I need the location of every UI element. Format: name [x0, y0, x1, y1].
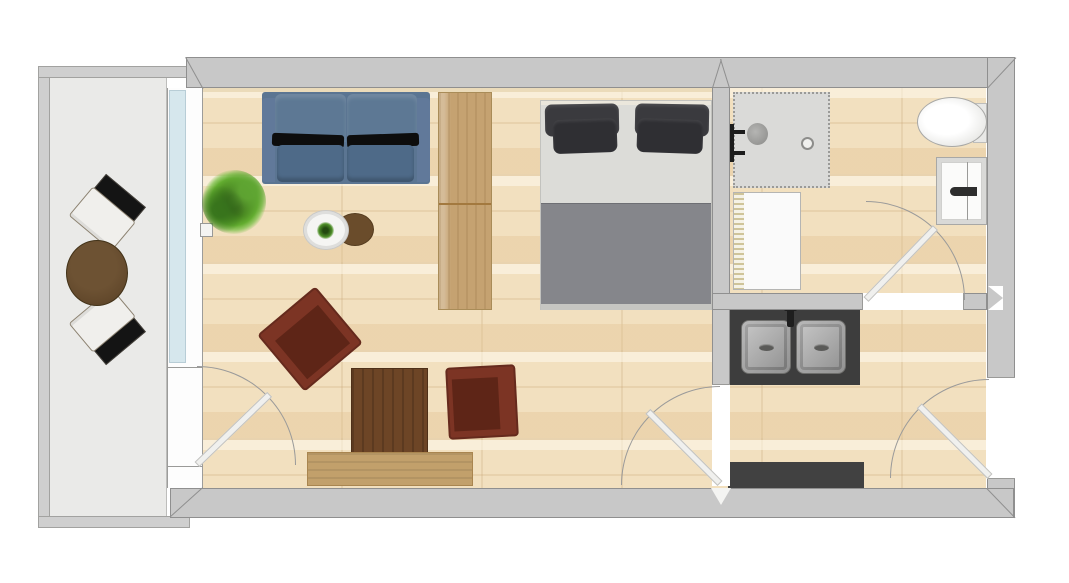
wall-top — [186, 57, 1014, 88]
potted-plant — [202, 170, 266, 234]
armchair-seat — [452, 377, 501, 431]
sink-basin-right — [796, 320, 846, 374]
door-jamb — [987, 377, 1015, 378]
desk — [351, 368, 428, 453]
sink-drain — [814, 344, 829, 351]
shower — [733, 92, 830, 188]
sofa-seat-cushion — [347, 145, 414, 182]
bed-footboard — [541, 304, 711, 310]
wall-bottom — [170, 488, 1014, 518]
entrance-door-opening — [987, 378, 1015, 478]
wall-interior-vertical — [712, 88, 730, 385]
floor-plan — [0, 0, 1069, 583]
armchair-right — [445, 364, 519, 440]
bed-pillow — [552, 118, 617, 154]
kitchen-floor-mat — [728, 462, 864, 489]
shower-head — [747, 123, 768, 145]
shower-fixture-arm — [734, 151, 745, 155]
wall-joint-triangle — [711, 488, 731, 505]
door-jamb — [712, 384, 730, 385]
table-plant — [317, 222, 334, 239]
double-bed — [540, 100, 712, 310]
balcony-round-table — [66, 240, 128, 306]
washbasin — [936, 157, 987, 225]
balcony-window-glass — [169, 90, 186, 363]
washbasin-faucet — [950, 187, 977, 196]
kitchen-faucet — [787, 308, 794, 327]
sink-basin-left — [741, 320, 791, 374]
door-jamb — [862, 293, 863, 310]
wall-bathroom-stub — [963, 293, 987, 310]
wall-joint-point — [988, 286, 1003, 310]
shower-drain — [801, 137, 814, 150]
balcony-wall-bottom — [38, 516, 190, 528]
sofa — [262, 92, 430, 184]
sofa-seat-cushion — [277, 145, 344, 182]
bed-blanket — [541, 203, 711, 304]
radiator-fins — [734, 193, 744, 289]
sideboard-bench — [307, 452, 473, 486]
shower-fixture-arm — [734, 130, 745, 134]
bed-pillow — [636, 118, 703, 154]
balcony-wall-left — [38, 66, 50, 528]
balcony-wall-top — [38, 66, 190, 78]
sink-drain — [759, 344, 774, 351]
wardrobe-divider — [439, 203, 491, 205]
wall-bathroom-horizontal — [712, 293, 863, 310]
door-jamb — [987, 478, 1015, 479]
radiator — [733, 192, 801, 290]
toilet — [917, 97, 987, 147]
wardrobe — [438, 92, 492, 310]
